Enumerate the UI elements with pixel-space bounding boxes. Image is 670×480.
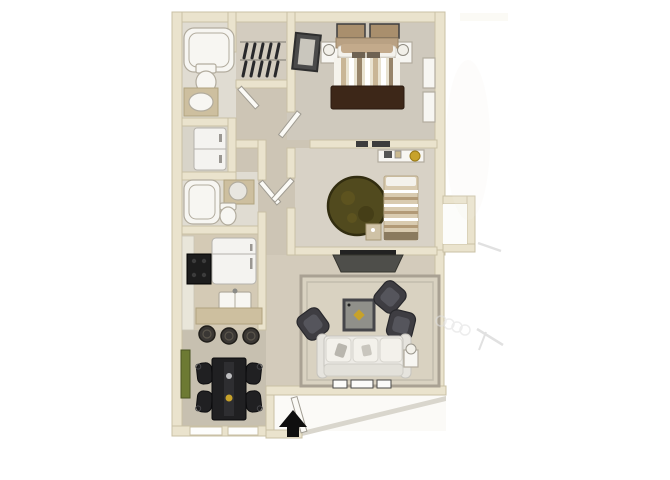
wall-art-frame xyxy=(337,24,365,38)
chair-seat xyxy=(196,362,213,384)
bar-stool xyxy=(199,326,215,342)
dresser xyxy=(423,58,435,88)
table-decor xyxy=(226,373,232,379)
laundry-closet xyxy=(194,128,226,170)
wall-segment xyxy=(287,208,295,255)
duvet-stripe xyxy=(365,58,370,88)
console-frame xyxy=(377,380,391,388)
duvet-stripe xyxy=(381,58,386,88)
bed-stripe xyxy=(384,211,418,214)
nightstand xyxy=(366,224,381,240)
bed xyxy=(331,38,404,109)
rug-texture xyxy=(347,213,357,223)
nightstand-item xyxy=(371,228,375,232)
sofa xyxy=(317,334,411,378)
chair-seat xyxy=(245,362,262,384)
wall-vent xyxy=(356,141,368,147)
coffee-table-item xyxy=(348,304,351,307)
bar-stool xyxy=(243,328,259,344)
appliance-handle xyxy=(219,134,222,142)
rug-texture xyxy=(341,191,355,205)
appliance-handle xyxy=(250,244,253,251)
duvet-runner xyxy=(334,58,341,88)
wall-segment xyxy=(266,392,274,436)
vanity-round-sink xyxy=(229,182,247,200)
duvet-stripe xyxy=(341,58,346,88)
sofa-back xyxy=(324,364,403,376)
table-lamp xyxy=(398,45,409,56)
dining-chair xyxy=(195,390,213,413)
table-lamp xyxy=(324,45,335,56)
patio-railing-mark xyxy=(478,243,501,251)
console-frame xyxy=(333,380,347,388)
patio-faint-wall xyxy=(460,13,508,21)
wall-segment xyxy=(182,226,258,234)
side-table-lamp xyxy=(406,344,416,354)
range xyxy=(187,254,211,284)
dining-chair xyxy=(195,362,213,385)
desk-item xyxy=(395,151,401,158)
duvet-runner xyxy=(393,58,400,88)
bar-stool xyxy=(221,328,237,344)
wall-segment xyxy=(182,172,236,180)
dining-chair xyxy=(245,362,263,385)
wall-vent xyxy=(372,141,390,147)
floor-plan-image xyxy=(0,0,670,480)
wall-segment xyxy=(287,148,295,178)
bed-stripe xyxy=(384,197,418,200)
table-runner xyxy=(224,362,234,416)
desk-gold-plate xyxy=(410,151,420,161)
leaning-mirror xyxy=(292,33,321,71)
pillow xyxy=(386,177,416,186)
pillow-tan xyxy=(341,44,393,53)
foot-blanket xyxy=(331,86,404,109)
wall-art-frame xyxy=(370,24,399,38)
patio-railing-mark xyxy=(479,332,486,350)
hall-floor-pocket xyxy=(236,148,258,172)
burner xyxy=(202,273,206,277)
green-wall-art xyxy=(181,350,190,398)
dresser xyxy=(423,92,435,122)
wall-segment xyxy=(228,118,236,180)
tv-console xyxy=(333,255,403,272)
dining-window xyxy=(228,427,258,435)
chair-seat xyxy=(245,390,262,412)
patio-faint-wash xyxy=(446,60,490,220)
appliance-handle xyxy=(250,258,253,269)
bed-foot-band xyxy=(384,232,418,240)
faucet xyxy=(233,289,238,294)
mirror-glass xyxy=(298,38,316,65)
floor-plan-svg xyxy=(0,0,670,480)
refrigerator xyxy=(212,238,256,284)
chair-seat xyxy=(196,390,213,412)
bed-stripe xyxy=(384,225,418,228)
burner xyxy=(202,259,206,263)
wall-segment xyxy=(236,80,295,88)
sofa-cushion xyxy=(380,338,402,362)
console-frame xyxy=(351,380,373,388)
burner xyxy=(192,259,196,263)
wall-segment xyxy=(258,140,266,180)
dining-window xyxy=(190,427,222,435)
patio xyxy=(436,13,508,350)
hall-floor-doorway xyxy=(295,140,310,148)
desk-item xyxy=(384,151,392,158)
table-decor xyxy=(226,395,233,402)
bed-stripe xyxy=(384,218,418,221)
bed-stripe xyxy=(384,204,418,207)
duvet-stripe xyxy=(349,58,354,88)
wall-segment xyxy=(172,12,445,22)
bed-stripe xyxy=(384,190,418,193)
vanity-sink xyxy=(189,93,213,111)
dining-chair xyxy=(245,390,263,413)
appliance-handle xyxy=(219,155,222,163)
bed xyxy=(384,176,418,240)
duvet-stripe xyxy=(373,58,378,88)
toilet-bowl xyxy=(220,207,236,225)
burner xyxy=(192,273,196,277)
breakfast-bar xyxy=(196,308,262,324)
storage-closet-wall xyxy=(443,244,475,252)
rug-texture xyxy=(358,206,374,222)
duvet-stripe xyxy=(357,58,362,88)
